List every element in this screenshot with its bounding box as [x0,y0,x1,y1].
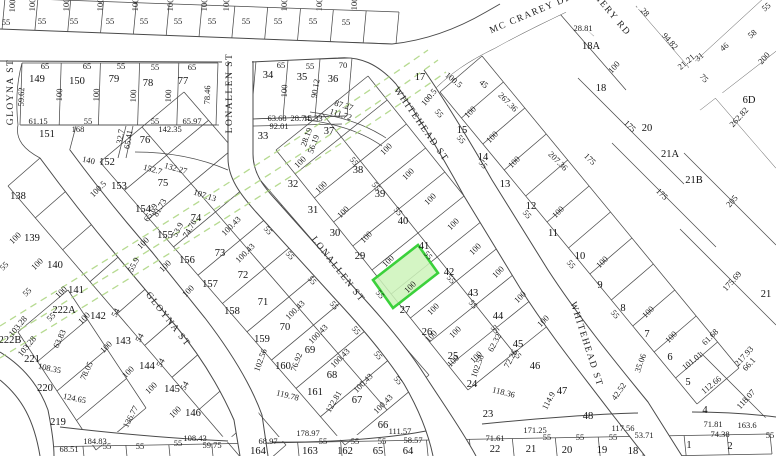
lot-number: 138 [10,191,26,202]
dimension-label: 100.43 [283,298,307,322]
dimension-label: 55 [70,16,79,26]
dimension-label: 100 [378,141,394,157]
dimension-label: 100 [400,166,416,182]
lot-number: 18 [596,83,607,94]
lot-number: 9 [597,280,602,291]
lot-number: 145 [164,384,180,395]
dimension-label: 55 [140,16,149,26]
dimension-label: 61.15 [28,116,47,126]
dimension-label: 100 [98,339,114,355]
dimension-label: 100 [91,88,101,101]
lot-number: 141 [68,285,84,296]
dimension-label: 68.97 [258,436,277,446]
lot-number: 74 [191,213,202,224]
lot-number: 153 [111,181,127,192]
lot-number: 68 [327,370,338,381]
dimension-label: 122.81 [323,389,343,414]
dimension-label: 118.07 [734,387,757,411]
dimension-label: 63.83 [51,328,68,350]
dimension-label: 55 [151,62,160,72]
lot-number: 71 [258,297,269,308]
dimension-label: 65 [188,62,197,72]
dimension-label: 118.36 [491,384,516,399]
dimension-label: 55 [378,436,387,446]
street-label-lonallen-st: LONALLEN ST [225,53,235,134]
dimension-label: 100 [349,0,359,10]
dimension-label: 168 [72,124,85,134]
dimension-label: 100 [279,0,289,11]
dimension-label: 65.41 [121,129,134,150]
lot-number: 160 [275,361,291,372]
lot-number: 22 [490,444,501,455]
lot-number: 78 [143,78,154,89]
lot-number: 6D [743,95,756,106]
lot-number: 26 [422,327,433,338]
dimension-label: 100 [506,154,522,170]
dimension-label: 100.43 [328,346,352,370]
lot-number: 40 [398,216,409,227]
dimension-label: 119.78 [275,387,300,402]
dimension-label: 55 [208,16,217,26]
lot-number: 15 [457,125,468,136]
lot-number: 75 [158,178,169,189]
dimension-label: 107.13 [192,187,217,204]
lot-number: 21 [526,444,537,455]
lot-number: 38 [353,165,364,176]
dimension-label: 100 [165,0,175,11]
lot-number: 146 [185,408,201,419]
dimension-label: 100 [54,88,64,101]
dimension-label: 100 [422,191,438,207]
lot-number: 27 [400,305,411,316]
dimension-label: 65.97 [182,116,201,126]
lot-number: 77 [178,76,189,87]
lot-number: 142 [90,311,106,322]
lot-number: 12 [526,201,537,212]
lot-number: 66 [378,420,389,431]
lot-number: 64 [403,446,414,456]
lot-number: 221 [24,354,40,365]
dimension-label: 100 [467,241,483,257]
dimension-label: 55 [106,16,115,26]
lot-number: 155 [157,230,173,241]
lot-number: 163 [302,446,318,456]
dimension-label: 55 [103,441,112,451]
dimension-label: 108.35 [37,361,62,376]
lot-number: 7 [644,329,649,340]
lot-number: 45 [513,339,524,350]
lot-number: 23 [483,409,494,420]
lot-number: 11 [548,228,558,239]
lot-number: 18A [582,41,601,52]
lot-number: 14 [478,152,489,163]
dimension-label: 175 [654,186,670,202]
lot-number: 29 [355,251,366,262]
lot-number: 222B [0,335,21,346]
dimension-label: 59.75 [202,440,221,450]
lot-number: 6 [667,352,672,363]
dimension-label: 90.12 [308,78,321,99]
dimension-label: 100 [53,284,69,300]
dimension-label: 55 [576,432,585,442]
lot-number: 21 [761,289,772,300]
dimension-label: 100 [292,154,308,170]
lot-number: 152 [99,157,115,168]
lot-number: 13 [500,179,511,190]
dimension-label: 54 [154,356,167,369]
dimension-label: 78.05 [78,360,95,382]
dimension-label: 55 [766,430,775,440]
dimension-label: 100 [120,364,136,380]
lot-number: 164 [250,446,267,456]
dimension-label: 100 [128,89,138,102]
dimension-label: 111.57 [389,426,412,436]
lot-number: 32 [288,179,299,190]
dimension-label: 61.68 [700,327,721,348]
lot-number: 24 [467,379,478,390]
dimension-label: 55 [136,441,145,451]
dimension-label: 45 [477,77,490,90]
dimension-label: 100 [279,84,289,97]
dimension-label: 100 [594,254,610,270]
dimension-label: 78.46 [202,85,213,104]
dimension-label: 65 [277,60,286,70]
lot-number: 1 [686,440,691,451]
lot-number: 162 [337,446,353,456]
dimension-label: 100 [7,230,23,246]
dimension-label: 124.65 [62,391,87,406]
dimension-label: 55 [0,259,10,272]
dimension-label: 55 [174,16,183,26]
lot-number: 35 [297,72,308,83]
dimension-label: 100 [199,0,209,11]
lot-number: 33 [258,131,269,142]
lot-number: 154 [135,204,152,215]
dimension-label: 100 [314,0,324,11]
dimension-label: 142.35 [158,124,181,134]
lot-number: 4 [702,405,708,416]
lot-number: 220 [37,383,53,394]
dimension-label: 100 [425,301,441,317]
dimension-label: 55 [342,17,351,27]
dimension-label: 55 [174,438,183,448]
dimension-label: 100 [606,59,622,75]
dimension-label: 71.81 [703,419,722,429]
dimension-label: 92.01 [269,121,288,131]
lot-number: 19 [597,445,608,456]
plat-map-canvas: 1001001001001001001001001001001005555555… [0,0,776,456]
lot-number: 76 [140,135,151,146]
lot-number: 25 [448,351,459,362]
lot-number: 79 [109,74,120,85]
dimension-label: 71.61 [485,433,504,443]
dimension-label: 100 [143,380,159,396]
dimension-label: 53.71 [634,430,653,440]
lot-number: 47 [557,386,568,397]
dimension-label: 74.38 [710,429,729,439]
lot-number: 73 [215,248,226,259]
lot-number: 48 [583,411,594,422]
dimension-label: 55 [274,16,283,26]
dimension-label: 55 [543,432,552,442]
lot-number: 156 [179,255,195,266]
dimension-label: 100 [163,89,173,102]
lot-number: 10 [575,251,586,262]
lot-number: 149 [29,74,45,85]
lot-number: 144 [139,361,156,372]
lot-number: 2 [727,441,732,452]
lot-number: 143 [115,336,131,347]
dimension-label: 100 [445,216,461,232]
dimension-label: 117.56 [611,423,634,433]
lot-number: 222A [52,305,76,316]
dimension-label: 102.56 [251,347,268,372]
lot-number: 37 [324,126,335,137]
dimension-label: 55 [84,116,93,126]
lot-number: 39 [375,189,386,200]
lot-number: 42 [444,267,455,278]
plat-map: 1001001001001001001001001001001005555555… [0,0,776,456]
lot-number: 20 [562,445,573,456]
dimension-label: 55 [309,16,318,26]
lot-number: 72 [238,270,249,281]
lot-number: 46 [530,361,541,372]
dimension-label: 100 [335,204,351,220]
dimension-label: 55 [38,16,47,26]
lot-number: 31 [308,205,319,216]
dimension-label: 58.57 [403,435,422,445]
dimension-label: 55 [351,436,360,446]
dimension-label: 163.6 [737,420,756,430]
dimension-label: 175 [582,151,598,167]
dimension-label: 65 [83,61,92,71]
lot-number: 36 [328,74,339,85]
dimension-label: 100 [490,264,506,280]
dimension-label: 55 [117,61,126,71]
lot-number: 21A [661,149,680,160]
lot-number: 17 [415,72,426,83]
dimension-label: 54 [178,379,191,392]
dimension-label: 100 [221,0,231,11]
dimension-label: 136.77 [120,404,140,429]
dimension-label: 68.51 [59,444,78,454]
lot-number: 158 [224,306,240,317]
dimension-label: 28.81 [573,23,592,33]
dimension-label: 175 [622,118,638,134]
dimension-label: 55 [20,285,33,298]
dimension-label: 35.06 [632,352,648,373]
lot-number: 30 [330,228,341,239]
lot-number: 34 [263,70,274,81]
lot-number: 151 [39,129,55,140]
lot-number: 161 [307,387,323,398]
lot-number: 140 [47,260,63,271]
dimension-label: 101.01 [680,349,704,372]
dimension-label: 152.7 [142,162,163,177]
lot-number: 20 [642,123,653,134]
dimension-label: 55 [319,436,328,446]
lot-number: 43 [468,288,479,299]
dimension-label: 132.27 [163,160,188,176]
dimension-label: 100 [61,0,71,11]
lot-number: 219 [50,417,66,428]
dimension-label: 178.97 [296,428,319,438]
lot-number: 41 [419,241,430,252]
dimension-label: 55 [306,61,315,71]
dimension-label: 100 [7,0,17,12]
lot-number: 8 [620,303,625,314]
lot-number: 69 [305,345,316,356]
dimension-label: 114.9 [540,390,558,411]
dimension-label: 100 [29,256,45,272]
dimension-label: 100.43 [233,241,257,265]
lot-number: 70 [280,322,291,333]
lot-number: 159 [254,334,270,345]
dimension-label: 100 [313,179,329,195]
lot-number: 139 [24,233,40,244]
dimension-label: 100 [27,0,37,11]
dimension-label: 100 [167,404,183,420]
dimension-label: 15.33 [303,113,322,123]
street-label-gloyna-st: GLOYNA ST [6,59,16,126]
dimension-label: 65 [41,61,50,71]
lot-number: 150 [69,76,85,87]
dimension-label: 55 [467,298,480,311]
dimension-label: 100.43 [219,214,243,238]
dimension-label: 70 [339,60,348,70]
dimension-label: 207.36 [546,149,570,173]
dimension-label: 54 [133,331,146,344]
lot-number: 5 [685,377,690,388]
dimension-label: 55 [2,17,11,27]
dimension-label: 55 [609,432,618,442]
lot-number: 65 [373,446,384,456]
dimension-label: 59.62 [16,87,27,106]
lot-number: 157 [202,279,218,290]
lot-number: 21B [685,175,703,186]
lot-number: 67 [352,395,363,406]
dimension-label: 62.32 [485,332,503,354]
dimension-label: 55 [242,16,251,26]
lot-number: 18 [628,446,639,456]
lot-number: 44 [493,311,504,322]
dimension-label: 100.43 [306,322,330,346]
dimension-label: 140 [81,154,96,166]
dimension-label: 267.36 [496,90,520,114]
dimension-label: 100 [95,0,105,11]
dimension-label: 100 [130,0,140,11]
